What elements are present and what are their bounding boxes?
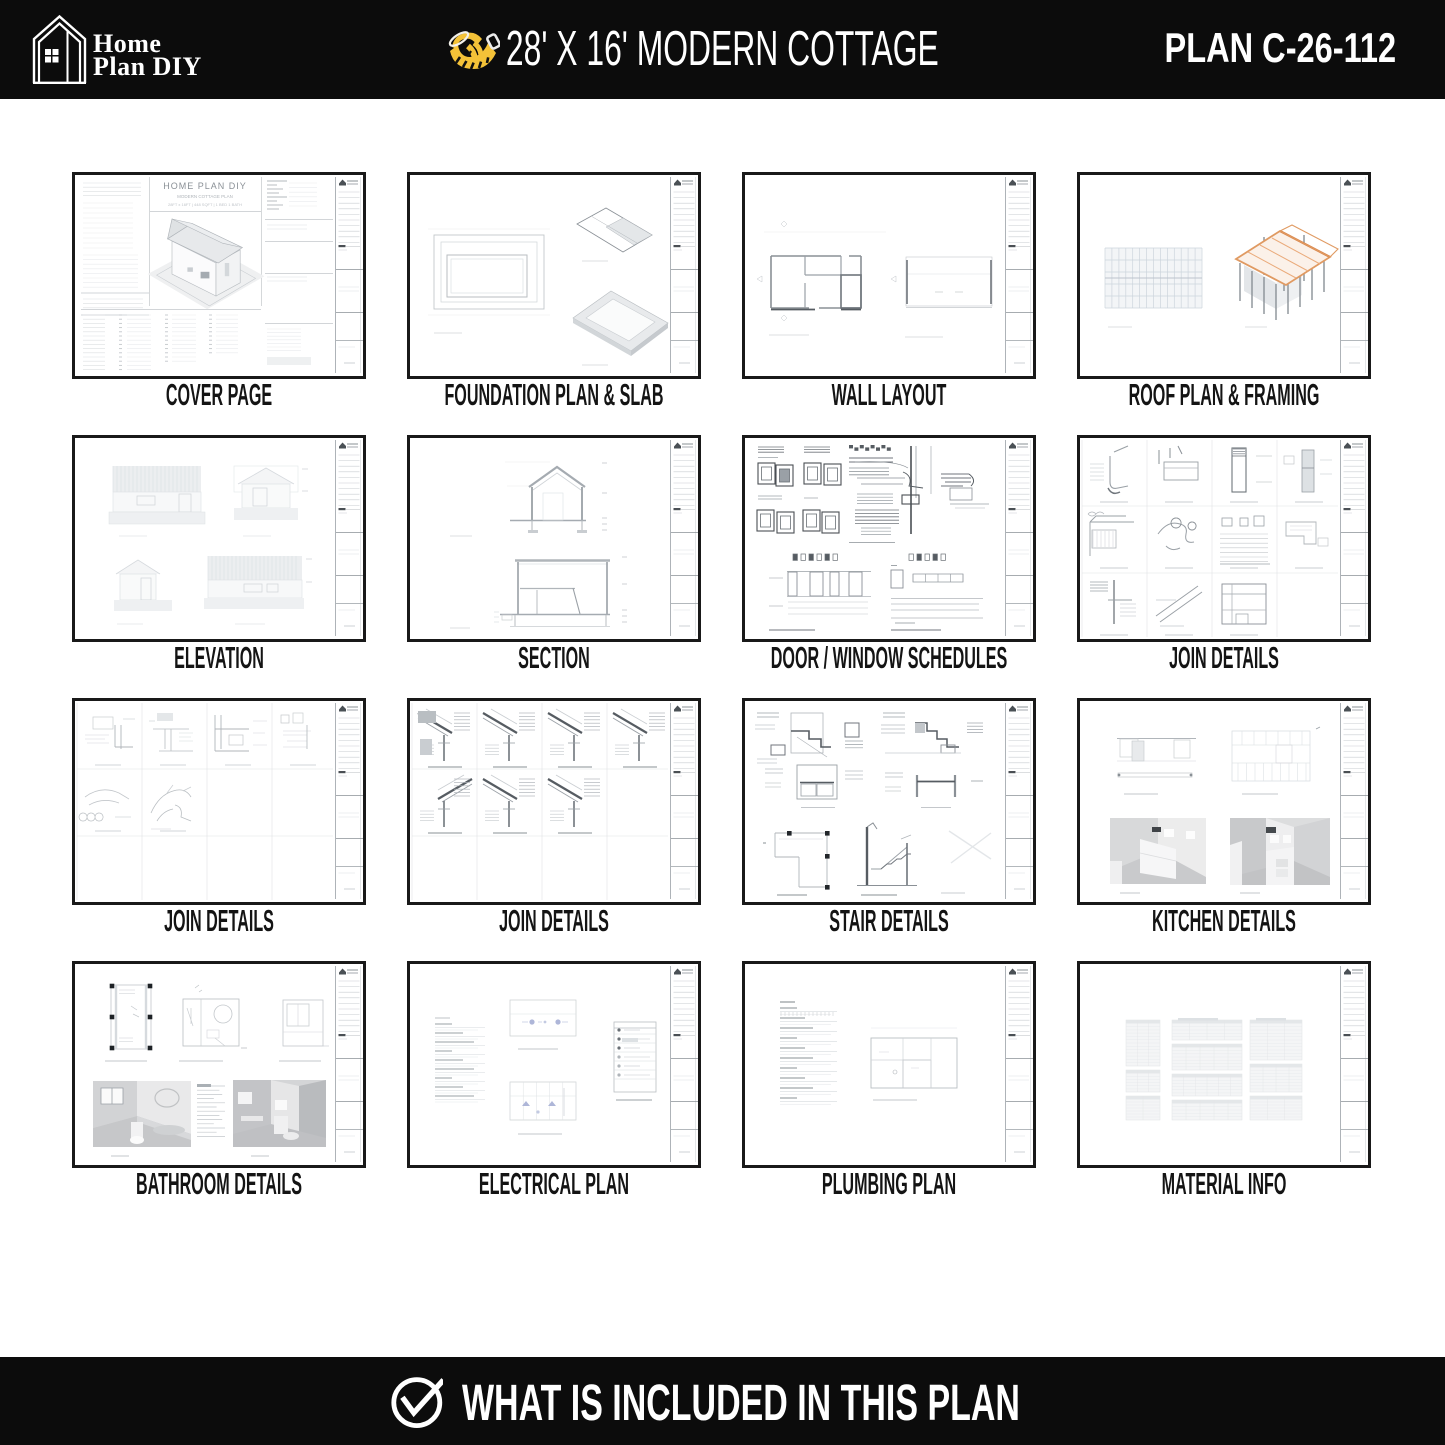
- svg-text:MODERN COTTAGE PLAN: MODERN COTTAGE PLAN: [177, 194, 233, 199]
- svg-text:HOME PLAN DIY: HOME PLAN DIY: [163, 181, 247, 191]
- svg-text:28FT x 16FT | 448 SQFT | 1: 28FT x 16FT | 448 SQFT | 1 BED 1 BATH: [168, 202, 242, 207]
